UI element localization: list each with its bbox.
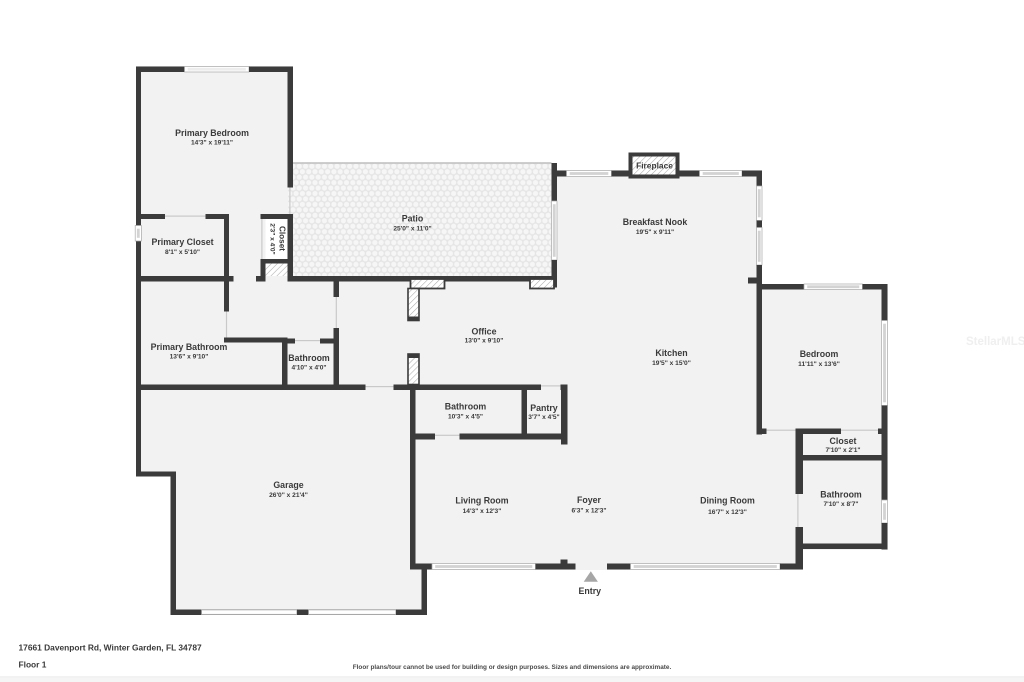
- svg-text:8'1" x 5'10": 8'1" x 5'10": [165, 249, 200, 256]
- svg-text:Floor plans/tour cannot be use: Floor plans/tour cannot be used for buil…: [353, 664, 672, 671]
- svg-text:3'7" x 4'5": 3'7" x 4'5": [528, 414, 559, 421]
- svg-text:Bedroom: Bedroom: [800, 349, 839, 359]
- svg-text:Breakfast Nook: Breakfast Nook: [623, 217, 688, 227]
- svg-text:10'3" x 4'5": 10'3" x 4'5": [448, 413, 483, 420]
- svg-text:Bathroom: Bathroom: [820, 489, 862, 499]
- svg-text:Pantry: Pantry: [530, 403, 557, 413]
- svg-text:4'10" x 4'0": 4'10" x 4'0": [291, 365, 326, 372]
- svg-text:Kitchen: Kitchen: [655, 348, 687, 358]
- svg-text:13'0" x 9'10": 13'0" x 9'10": [465, 337, 504, 344]
- svg-text:14'3" x 19'11": 14'3" x 19'11": [191, 140, 233, 147]
- svg-text:Bathroom: Bathroom: [445, 401, 487, 411]
- svg-text:Primary Closet: Primary Closet: [151, 237, 213, 247]
- svg-text:14'3" x 12'3": 14'3" x 12'3": [463, 508, 502, 515]
- svg-text:19'5" x 9'11": 19'5" x 9'11": [636, 229, 674, 236]
- svg-text:13'6" x 9'10": 13'6" x 9'10": [170, 354, 209, 361]
- svg-text:17661 Davenport Rd, Winter Gar: 17661 Davenport Rd, Winter Garden, FL 34…: [19, 643, 202, 653]
- svg-text:Garage: Garage: [273, 480, 303, 490]
- svg-text:25'0" x 11'0": 25'0" x 11'0": [393, 225, 431, 232]
- svg-text:Primary Bedroom: Primary Bedroom: [175, 128, 249, 138]
- svg-text:Entry: Entry: [579, 586, 602, 596]
- svg-text:Living Room: Living Room: [455, 495, 508, 505]
- svg-text:Office: Office: [472, 326, 497, 336]
- svg-text:Fireplace: Fireplace: [636, 161, 673, 171]
- svg-text:StellarMLS: StellarMLS: [966, 336, 1024, 348]
- svg-text:7'10" x 2'1": 7'10" x 2'1": [825, 447, 860, 454]
- svg-text:16'7" x 12'3": 16'7" x 12'3": [708, 509, 747, 516]
- svg-text:Closet: Closet: [277, 226, 286, 251]
- svg-text:Primary Bathroom: Primary Bathroom: [151, 342, 228, 352]
- svg-text:11'11" x 13'6": 11'11" x 13'6": [798, 361, 840, 368]
- svg-text:Foyer: Foyer: [577, 495, 602, 505]
- svg-text:Closet: Closet: [830, 436, 857, 446]
- svg-text:26'0" x 21'4": 26'0" x 21'4": [269, 492, 308, 499]
- svg-text:2'3" x 4'0": 2'3" x 4'0": [268, 223, 275, 254]
- svg-text:Floor 1: Floor 1: [19, 660, 47, 670]
- svg-text:19'5" x 15'0": 19'5" x 15'0": [652, 360, 691, 367]
- svg-text:Dining Room: Dining Room: [700, 495, 755, 505]
- svg-text:Bathroom: Bathroom: [288, 353, 330, 363]
- svg-text:7'10" x 8'7": 7'10" x 8'7": [823, 501, 858, 508]
- svg-text:Patio: Patio: [402, 214, 424, 224]
- svg-text:6'3" x 12'3": 6'3" x 12'3": [571, 508, 606, 515]
